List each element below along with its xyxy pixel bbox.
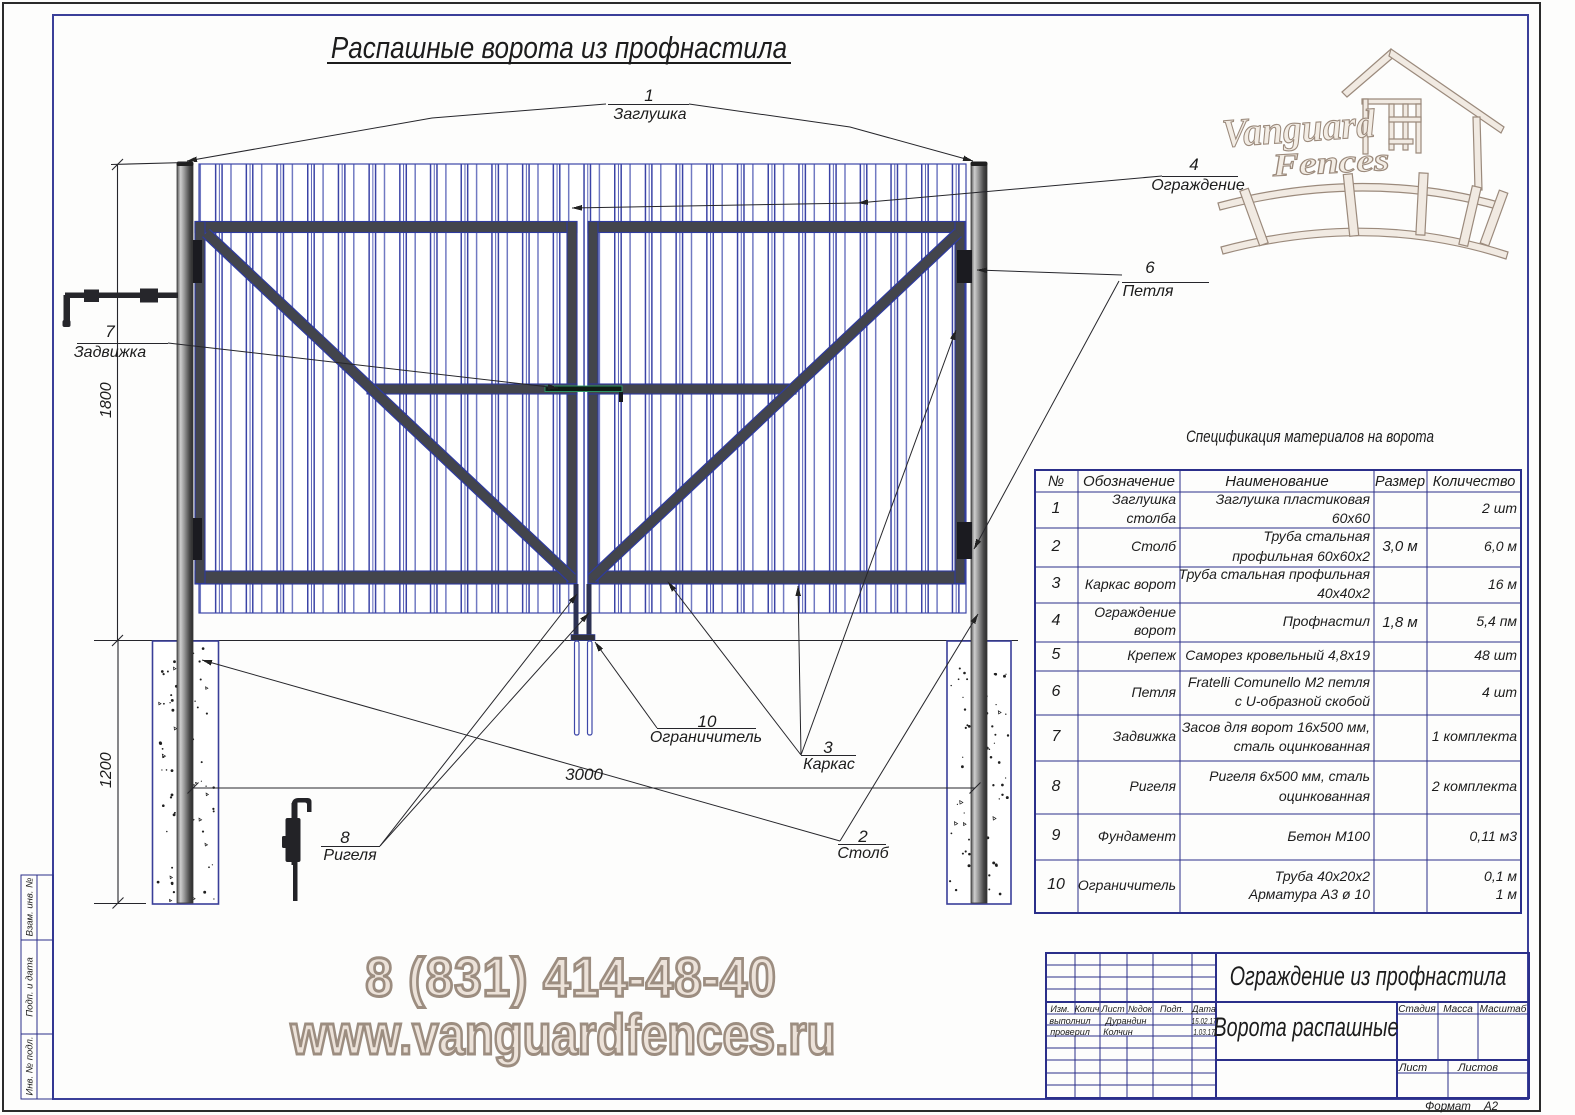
svg-text:Fences: Fences [1270,141,1390,183]
